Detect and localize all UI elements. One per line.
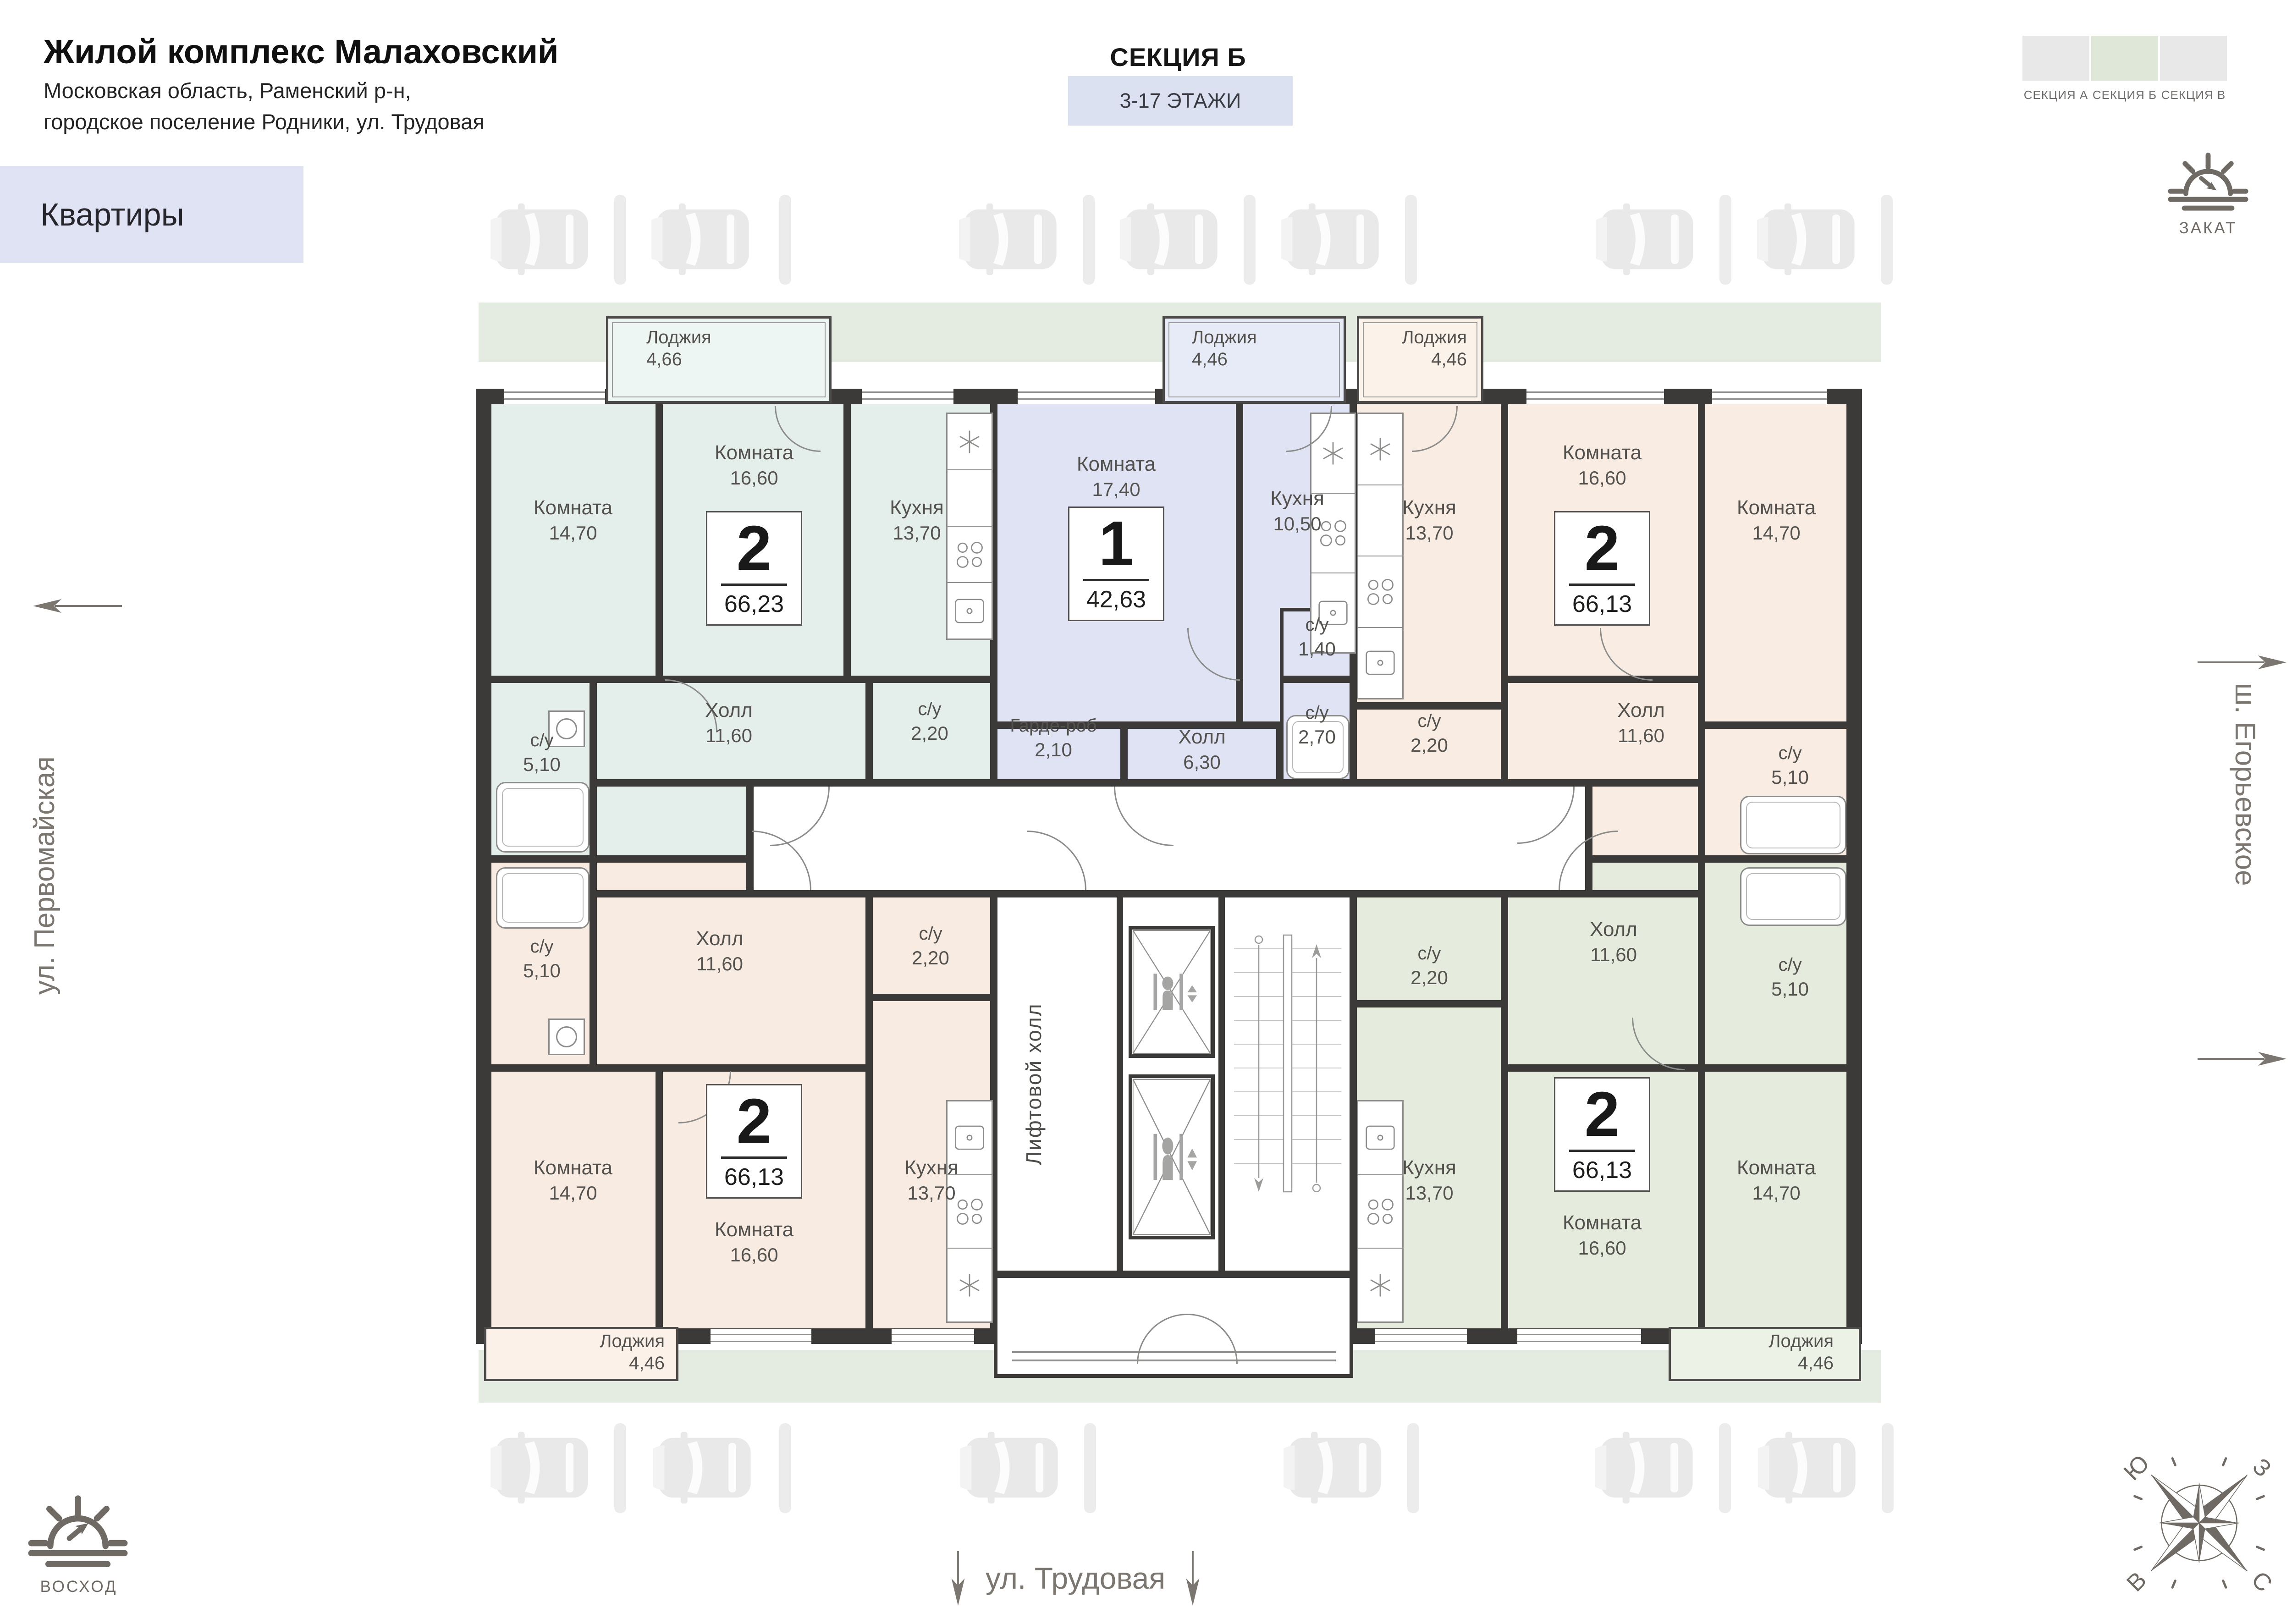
elevator-shaft-1 — [1129, 926, 1215, 1058]
room-label: Комната 16,60 — [715, 440, 793, 490]
tab-label-section-v: СЕКЦИЯ В — [2148, 88, 2239, 102]
room-area: 2,70 — [1298, 725, 1336, 749]
car-icon — [959, 202, 1062, 277]
car-icon — [1284, 1430, 1386, 1505]
window — [1712, 387, 1827, 404]
parking-divider — [779, 195, 791, 285]
room-area: 1,40 — [1298, 637, 1336, 661]
car-icon — [490, 202, 593, 277]
sunrise-icon — [25, 1485, 131, 1573]
car-icon — [490, 1430, 593, 1505]
apt-b-loggia-label: Лоджия 4,46 — [1192, 326, 1257, 370]
room-name: с/у — [523, 935, 561, 958]
room-label: с/у 5,10 — [523, 729, 561, 777]
apt-c-kitchen-units — [1357, 413, 1404, 699]
apt-total-area: 66,13 — [1555, 586, 1649, 624]
apt-e-kitchen-units — [1357, 1100, 1404, 1323]
room-area: 17,40 — [1077, 477, 1156, 502]
street-bottom: ул. Трудовая — [949, 1549, 1202, 1607]
page-subtitle-line1: Московская область, Раменский р-н, — [44, 78, 411, 103]
apt-c-hall — [1504, 679, 1702, 783]
stove-icon — [948, 526, 992, 582]
room-label: Холл 11,60 — [1590, 917, 1637, 967]
room-name: Комната — [715, 440, 793, 466]
loggia-name: Лоджия — [646, 326, 711, 348]
room-name: с/у — [523, 729, 561, 752]
room-name: Комната — [534, 495, 612, 521]
apt-d-hall — [593, 894, 869, 1068]
room-label: Комната 16,60 — [715, 1217, 793, 1267]
room-name: Холл — [1590, 917, 1637, 942]
down-arrow-icon — [949, 1549, 967, 1607]
room-label: Комната 16,60 — [1563, 440, 1642, 490]
apt-rooms-count: 2 — [721, 1088, 787, 1159]
loggia-area: 4,46 — [1192, 348, 1257, 370]
parking-divider — [1881, 195, 1893, 285]
room-label: Комната 16,60 — [1563, 1210, 1642, 1261]
car-icon — [1596, 202, 1698, 277]
loggia-area: 4,66 — [646, 348, 711, 370]
car-icon — [1595, 1430, 1698, 1505]
room-name: Холл — [1178, 724, 1226, 750]
room-name: Кухня — [1402, 1155, 1456, 1181]
room-label: Холл 11,60 — [1617, 698, 1665, 748]
apt-c-room-14-70 — [1702, 401, 1850, 725]
room-area: 2,20 — [1410, 733, 1448, 758]
floors-badge: 3-17 ЭТАЖИ — [1068, 76, 1293, 126]
apt-total-area: 66,13 — [1555, 1152, 1649, 1190]
room-label: Гарде-роб 2,10 — [1001, 714, 1106, 762]
loggia-name: Лоджия — [1696, 1330, 1834, 1352]
bathtub — [1740, 796, 1846, 854]
lift-hall-label: Лифтовой холл — [1021, 953, 1090, 1215]
room-name: Комната — [715, 1217, 793, 1243]
stove-icon — [1358, 1174, 1402, 1248]
car-icon — [651, 202, 754, 277]
room-area: 16,60 — [1563, 466, 1642, 490]
tab-section-b[interactable] — [2091, 36, 2158, 81]
parking-divider — [1719, 195, 1731, 285]
room-name: с/у — [912, 922, 949, 946]
room-name: с/у — [1410, 942, 1448, 965]
room-name: Кухня — [1270, 486, 1324, 512]
sink-icon — [1358, 1101, 1402, 1174]
room-area: 16,60 — [715, 466, 793, 490]
page-subtitle-line2: городское поселение Родники, ул. Трудова… — [44, 109, 485, 134]
room-name: Холл — [1617, 698, 1665, 723]
apt-rooms-count: 2 — [1569, 1081, 1635, 1152]
sink-icon — [948, 582, 992, 639]
street-right-arrow — [2196, 653, 2287, 672]
apt-a-badge[interactable]: 2 66,23 — [706, 511, 802, 626]
apt-a-loggia — [606, 316, 832, 403]
window — [1018, 387, 1155, 404]
parking-divider — [1405, 195, 1417, 285]
tab-section-a[interactable] — [2022, 36, 2089, 81]
apt-rooms-count: 2 — [1569, 515, 1635, 586]
floor-plan-page: Жилой комплекс Малаховский Московская об… — [0, 0, 2292, 1624]
apt-total-area: 42,63 — [1069, 581, 1163, 620]
window — [1375, 1329, 1467, 1347]
section-title: СЕКЦИЯ Б — [1041, 42, 1316, 72]
street-left-arrow — [32, 597, 124, 615]
room-area: 6,30 — [1178, 750, 1226, 775]
room-name: Кухня — [890, 495, 944, 521]
room-label: Кухня 13,70 — [1402, 495, 1456, 545]
apt-d-badge[interactable]: 2 66,13 — [706, 1084, 802, 1199]
loggia-glazing — [612, 322, 826, 397]
room-label: Холл 11,60 — [705, 698, 753, 748]
window — [1526, 387, 1664, 404]
room-label: Комната 14,70 — [1737, 1155, 1816, 1206]
room-area: 11,60 — [1590, 942, 1637, 967]
bathtub — [496, 782, 590, 853]
room-name: с/у — [1298, 701, 1336, 725]
room-name: с/у — [911, 698, 948, 721]
apt-c-badge[interactable]: 2 66,13 — [1554, 511, 1650, 626]
room-area: 16,60 — [715, 1243, 793, 1267]
room-label: Холл 6,30 — [1178, 724, 1226, 775]
tab-section-v[interactable] — [2160, 36, 2227, 81]
parking-divider — [614, 1423, 626, 1513]
room-name: с/у — [1298, 613, 1336, 637]
compass-rose: Ю З В С — [2120, 1444, 2278, 1602]
room-label: с/у 5,10 — [523, 935, 561, 983]
apt-rooms-count: 1 — [1083, 511, 1149, 581]
car-icon — [960, 1430, 1063, 1505]
room-label: Холл 11,60 — [696, 926, 744, 976]
apt-a-entry — [593, 783, 750, 859]
apt-rooms-count: 2 — [721, 515, 787, 586]
car-icon — [1120, 202, 1223, 277]
parking-divider — [1084, 1423, 1096, 1513]
room-label: с/у 5,10 — [1771, 742, 1809, 790]
room-area: 2,20 — [912, 946, 949, 970]
elevator-shaft-2 — [1129, 1074, 1215, 1239]
page-title: Жилой комплекс Малаховский — [44, 32, 559, 71]
vent-icon — [1358, 1248, 1402, 1321]
street-right-label: ш. Егорьевское — [2213, 683, 2261, 1036]
room-area: 10,50 — [1270, 512, 1324, 536]
room-name: Комната — [1737, 1155, 1816, 1181]
parking-divider — [1244, 195, 1256, 285]
room-name: Кухня — [904, 1155, 959, 1181]
vent-icon — [948, 1248, 992, 1321]
room-label: с/у 1,40 — [1298, 613, 1336, 661]
room-area: 14,70 — [534, 1181, 612, 1206]
room-name: Комната — [1737, 495, 1816, 521]
window — [862, 387, 953, 404]
apt-a-kitchen-units — [946, 413, 993, 640]
bathtub — [1740, 867, 1846, 926]
room-label: Комната 14,70 — [534, 495, 612, 545]
room-name: Комната — [534, 1155, 612, 1181]
window — [504, 387, 605, 404]
loggia-name: Лоджия — [527, 1330, 665, 1352]
elevator-icon — [1132, 930, 1211, 1054]
parking-divider — [1719, 1423, 1731, 1513]
street-bottom-label: ул. Трудовая — [986, 1561, 1165, 1596]
counter — [948, 469, 992, 526]
room-area: 14,70 — [534, 521, 612, 545]
room-area: 5,10 — [523, 752, 561, 777]
room-label: с/у 2,20 — [912, 922, 949, 970]
parking-divider — [1882, 1423, 1894, 1513]
loggia-name: Лоджия — [1375, 326, 1467, 348]
parking-divider — [1083, 195, 1095, 285]
apartments-badge-label: Квартиры — [0, 196, 184, 233]
car-icon — [1281, 202, 1384, 277]
parking-divider — [614, 195, 626, 285]
apt-d-entry — [593, 859, 750, 894]
compass-south-label: Ю — [2120, 1450, 2154, 1486]
room-name: Кухня — [1402, 495, 1456, 521]
sunset-icon — [2165, 144, 2252, 215]
room-label: Комната 17,40 — [1077, 451, 1156, 502]
down-arrow-icon — [1184, 1549, 1202, 1607]
room-label: Кухня 13,70 — [904, 1155, 959, 1206]
street-right-arrow — [2196, 1050, 2287, 1068]
car-icon — [1758, 1430, 1861, 1505]
room-area: 11,60 — [705, 723, 753, 748]
room-area: 5,10 — [1771, 977, 1809, 1002]
room-area: 2,10 — [1001, 738, 1106, 762]
room-area: 5,10 — [1771, 765, 1809, 790]
room-label: с/у 2,70 — [1298, 701, 1336, 749]
room-label: Комната 14,70 — [534, 1155, 612, 1206]
apt-d-kitchen-units — [946, 1100, 993, 1323]
room-area: 11,60 — [696, 952, 744, 976]
room-area: 2,20 — [911, 721, 948, 746]
window — [1517, 1329, 1641, 1347]
parking-divider — [779, 1423, 791, 1513]
room-name: с/у — [1771, 742, 1809, 765]
bathtub — [496, 867, 590, 929]
room-area: 14,70 — [1737, 521, 1816, 545]
room-area: 13,70 — [904, 1181, 959, 1206]
apt-e-loggia-label: Лоджия 4,46 — [1696, 1330, 1834, 1374]
room-area: 13,70 — [1402, 521, 1456, 545]
room-label: Кухня 10,50 — [1270, 486, 1324, 536]
sunset-label: ЗАКАТ — [2179, 219, 2237, 237]
apt-c-loggia-label: Лоджия 4,46 — [1375, 326, 1467, 370]
street-left-label: ул. Первомайская — [28, 623, 77, 995]
window — [892, 1329, 974, 1347]
loggia-area: 4,46 — [527, 1352, 665, 1374]
elevator-icon — [1132, 1078, 1211, 1236]
room-name: с/у — [1410, 710, 1448, 733]
room-name: Холл — [696, 926, 744, 952]
room-name: Комната — [1563, 1210, 1642, 1236]
room-area: 14,70 — [1737, 1181, 1816, 1206]
room-name: Холл — [705, 698, 753, 723]
room-label: Комната 14,70 — [1737, 495, 1816, 545]
apt-e-badge[interactable]: 2 66,13 — [1554, 1077, 1650, 1192]
core-wall — [1117, 897, 1123, 1271]
apt-total-area: 66,13 — [707, 1159, 801, 1197]
room-area: 13,70 — [1402, 1181, 1456, 1206]
counter — [1358, 484, 1402, 556]
vent-icon — [1358, 414, 1402, 484]
room-area: 5,10 — [523, 958, 561, 983]
room-area: 13,70 — [890, 521, 944, 545]
car-icon — [653, 1430, 756, 1505]
apt-a-loggia-label: Лоджия 4,66 — [646, 326, 711, 370]
loggia-name: Лоджия — [1192, 326, 1257, 348]
parking-divider — [1407, 1423, 1419, 1513]
apt-b-badge[interactable]: 1 42,63 — [1068, 506, 1164, 621]
room-label: с/у 2,20 — [911, 698, 948, 746]
room-label: с/у 5,10 — [1771, 953, 1809, 1002]
window — [711, 1329, 811, 1347]
room-name: Гарде-роб — [1001, 714, 1106, 738]
loggia-area: 4,46 — [1375, 348, 1467, 370]
vent-icon — [948, 414, 992, 469]
apt-total-area: 66,23 — [707, 586, 801, 624]
apt-d-loggia-label: Лоджия 4,46 — [527, 1330, 665, 1374]
stove-icon — [1358, 556, 1402, 627]
room-label: Кухня 13,70 — [890, 495, 944, 545]
staircase — [1230, 917, 1345, 1238]
room-name: Комната — [1077, 451, 1156, 477]
room-name: Комната — [1563, 440, 1642, 466]
room-label: с/у 2,20 — [1410, 942, 1448, 990]
compass-west-label: З — [2247, 1453, 2276, 1482]
sunrise-label: ВОСХОД — [40, 1578, 117, 1596]
sink-icon — [1358, 627, 1402, 699]
room-area: 11,60 — [1617, 723, 1665, 748]
apartments-badge[interactable]: Квартиры — [0, 166, 303, 263]
core-wall — [1218, 897, 1225, 1271]
room-label: Кухня 13,70 — [1402, 1155, 1456, 1206]
room-area: 16,60 — [1563, 1236, 1642, 1261]
room-label: с/у 2,20 — [1410, 710, 1448, 758]
compass-north-label: С — [2246, 1566, 2277, 1597]
room-name: с/у — [1771, 953, 1809, 977]
car-icon — [1757, 202, 1860, 277]
loggia-area: 4,46 — [1696, 1352, 1834, 1374]
room-area: 2,20 — [1410, 965, 1448, 990]
washing-machine-icon — [548, 1018, 585, 1055]
compass-east-label: В — [2121, 1567, 2152, 1597]
